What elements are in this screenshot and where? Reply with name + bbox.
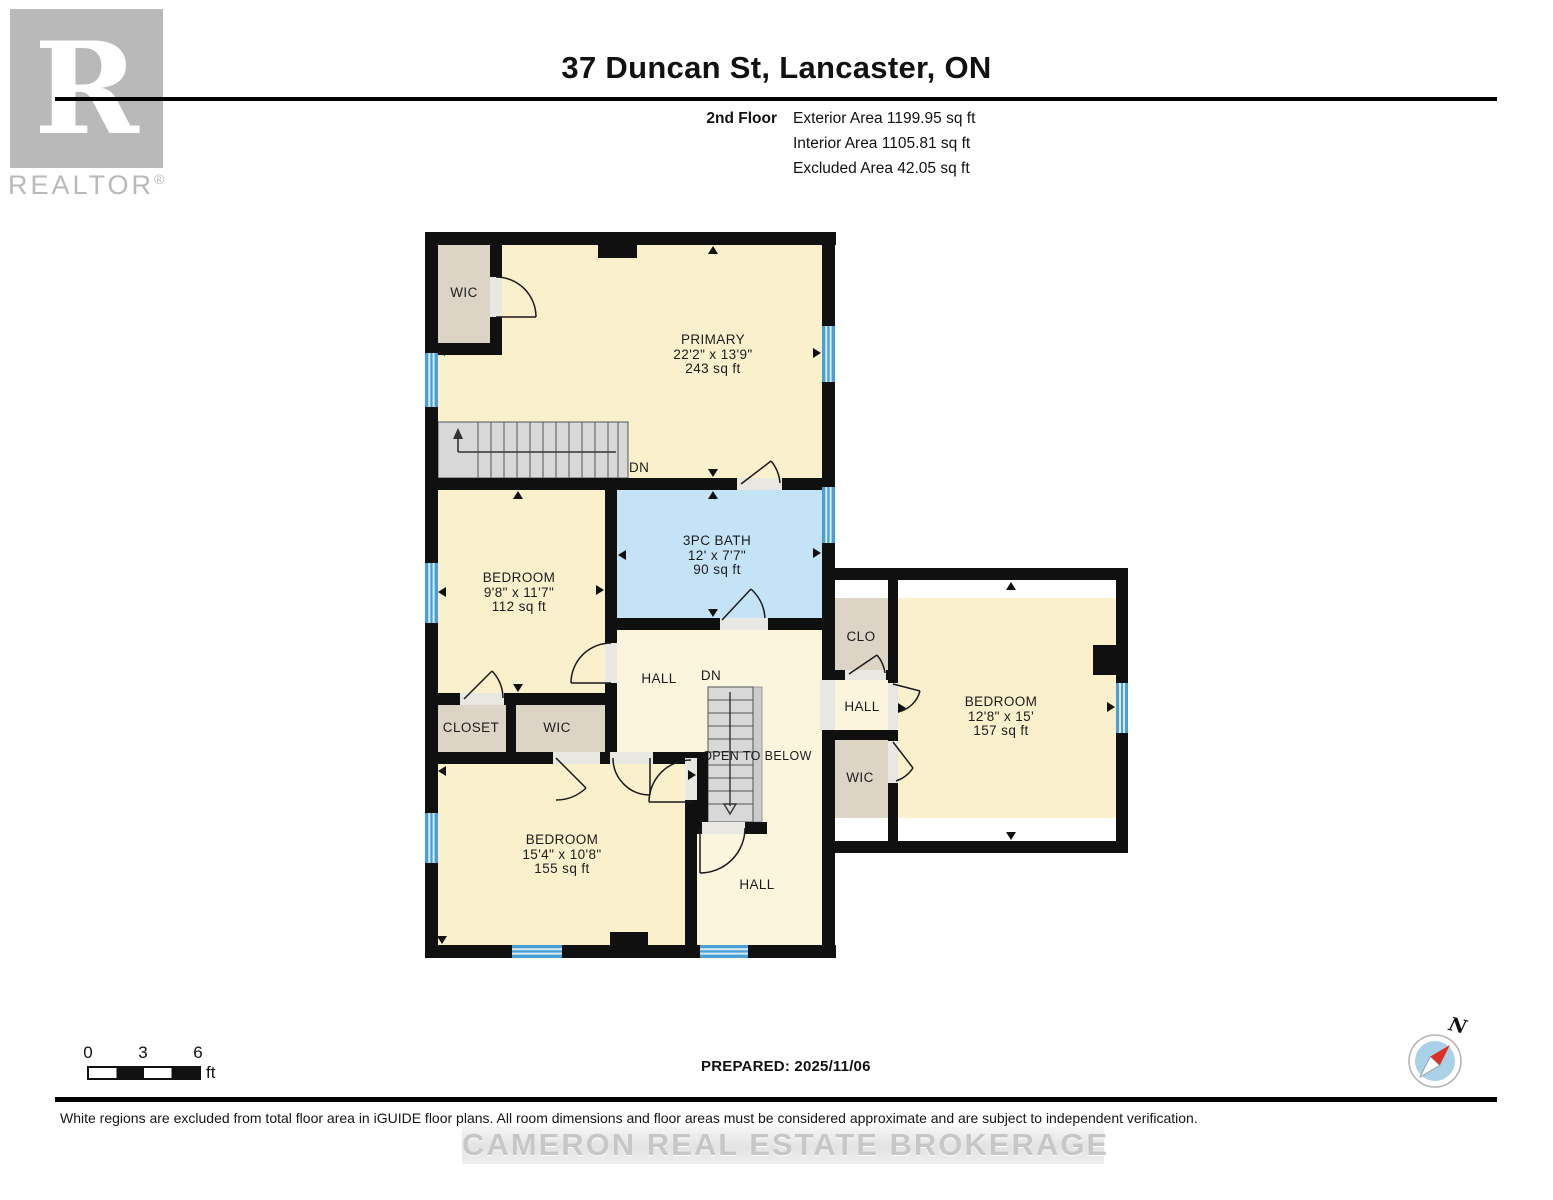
disclaimer-text: White regions are excluded from total fl… — [60, 1110, 1198, 1126]
window-left-primary — [425, 353, 438, 407]
room-name: HALL — [844, 700, 879, 715]
room-area: 155 sq ft — [522, 862, 601, 877]
room-name: BEDROOM — [483, 571, 556, 586]
room-name: PRIMARY — [673, 333, 752, 348]
room-name: CLO — [847, 630, 876, 645]
room-name: WIC — [543, 721, 570, 736]
chimney-top — [598, 245, 637, 258]
room-dims: 15'4" x 10'8" — [522, 848, 601, 863]
room-label-bedroom-right: BEDROOM 12'8" x 15' 157 sq ft — [965, 695, 1038, 739]
room-label-wic-right: WIC — [846, 771, 873, 786]
window-bottom-1 — [512, 945, 562, 958]
wall-ext-bottom — [822, 841, 1128, 853]
room-name: BEDROOM — [965, 695, 1038, 710]
room-name: 3PC BATH — [683, 534, 751, 549]
stairs-upper — [438, 422, 628, 478]
room-name: HALL — [641, 672, 676, 687]
room-label-wic-center: WIC — [543, 721, 570, 736]
window-bottom-2 — [700, 945, 748, 958]
floor-plan-page: R REALTOR® 37 Duncan St, Lancaster, ON 2… — [0, 0, 1553, 1200]
room-label-primary: PRIMARY 22'2" x 13'9" 243 sq ft — [673, 333, 752, 377]
room-area: 90 sq ft — [683, 563, 751, 578]
footer-divider — [55, 1097, 1497, 1102]
room-label-hall-center: HALL — [641, 672, 676, 687]
scale-bar — [87, 1066, 201, 1080]
room-name: HALL — [739, 878, 774, 893]
room-label-hall-bottom: HALL — [739, 878, 774, 893]
room-dims: 22'2" x 13'9" — [673, 348, 752, 363]
room-label-bedroom-left: BEDROOM 9'8" x 11'7" 112 sq ft — [483, 571, 556, 615]
room-label-hall-right: HALL — [844, 700, 879, 715]
room-label-bedroom-bottom: BEDROOM 15'4" x 10'8" 155 sq ft — [522, 833, 601, 877]
label-open-to-below: OPEN TO BELOW — [702, 749, 812, 764]
room-dims: 9'8" x 11'7" — [483, 586, 556, 601]
brokerage-watermark: CAMERON REAL ESTATE BROKERAGE — [462, 1127, 1104, 1164]
chimney-right — [1093, 645, 1116, 675]
wall-stairs2-left — [697, 752, 708, 834]
scale-tick-6: 6 — [193, 1043, 202, 1063]
room-dims: 12'8" x 15' — [965, 710, 1038, 725]
room-label-closet: CLOSET — [443, 721, 499, 736]
room-label-closet-right: CLO — [847, 630, 876, 645]
scale-tick-3: 3 — [138, 1043, 147, 1063]
window-left-bedroom — [425, 563, 438, 623]
prepared-date: PREPARED: 2025/11/06 — [701, 1058, 871, 1075]
wall-bottom — [425, 945, 836, 958]
room-name: CLOSET — [443, 721, 499, 736]
wall-closet-top — [425, 693, 617, 705]
floor-plan-drawing — [0, 0, 1553, 1200]
wall-ext-top — [822, 568, 1128, 580]
window-right-bath — [822, 487, 835, 543]
room-name: WIC — [450, 286, 477, 301]
room-area: 243 sq ft — [673, 362, 752, 377]
scale-unit: ft — [206, 1063, 215, 1083]
label-dn-lower: DN — [701, 669, 721, 684]
window-left-bedroom3 — [425, 813, 438, 863]
room-dims: 12' x 7'7" — [683, 549, 751, 564]
room-area: 157 sq ft — [965, 724, 1038, 739]
wall-top — [425, 232, 836, 245]
room-name: BEDROOM — [522, 833, 601, 848]
room-label-bath: 3PC BATH 12' x 7'7" 90 sq ft — [683, 534, 751, 578]
chimney-bottom — [610, 932, 648, 945]
compass-icon — [1404, 1030, 1466, 1092]
window-ext-right — [1116, 683, 1128, 733]
room-name: WIC — [846, 771, 873, 786]
label-dn-upper: DN — [629, 460, 649, 475]
room-area: 112 sq ft — [483, 600, 556, 615]
room-label-wic-top-left: WIC — [450, 286, 477, 301]
window-right-primary — [822, 326, 835, 382]
scale-tick-0: 0 — [83, 1043, 92, 1063]
